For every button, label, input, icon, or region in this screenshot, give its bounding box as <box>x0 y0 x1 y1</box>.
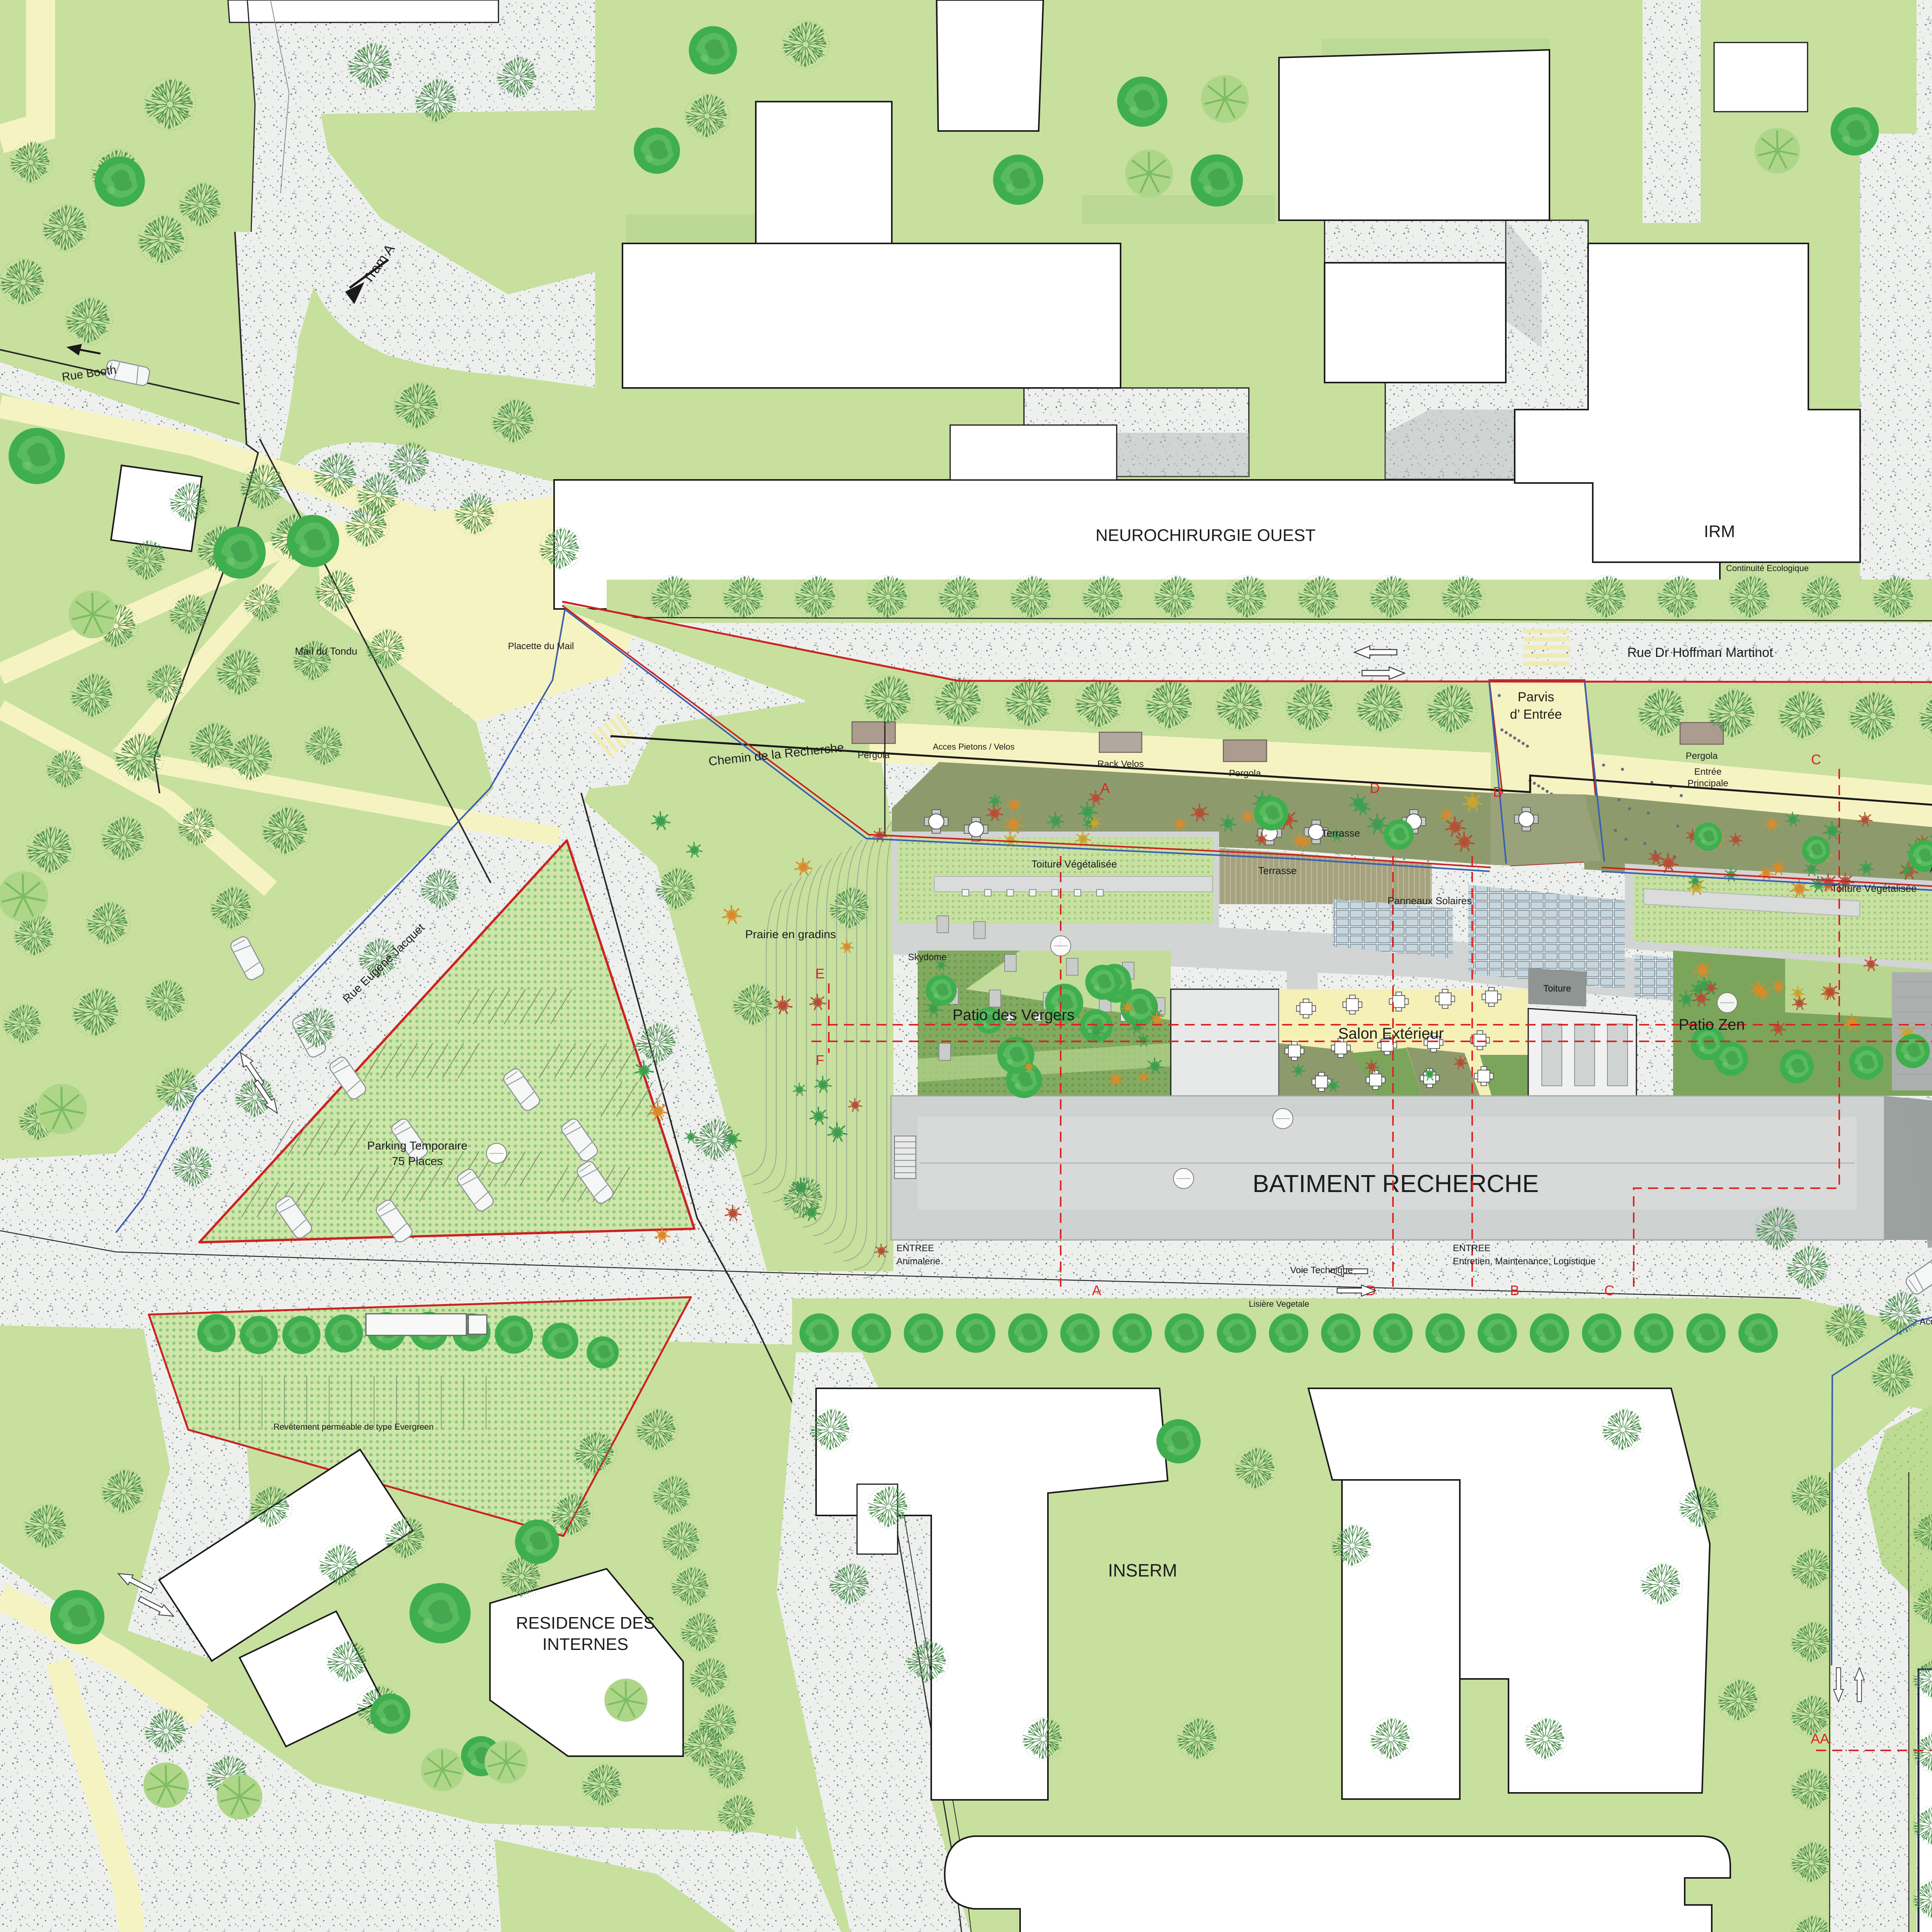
svg-text:IRM: IRM <box>1704 522 1735 541</box>
svg-text:75 Places: 75 Places <box>392 1155 443 1168</box>
svg-text:Terrasse: Terrasse <box>1321 827 1360 839</box>
svg-text:Skydome: Skydome <box>908 952 947 963</box>
svg-text:Patio Zen: Patio Zen <box>1679 1016 1745 1033</box>
svg-text:B: B <box>1510 1282 1519 1298</box>
svg-text:NEUROCHIRURGIE OUEST: NEUROCHIRURGIE OUEST <box>1095 526 1316 545</box>
svg-text:Terrasse: Terrasse <box>1258 865 1297 876</box>
svg-text:Animalerie: Animalerie <box>896 1256 940 1267</box>
svg-text:RESIDENCE DES: RESIDENCE DES <box>516 1614 655 1633</box>
svg-text:Accès Vehicules: Accès Vehicules <box>1920 1316 1932 1327</box>
svg-text:Mail du Tondu: Mail du Tondu <box>295 645 357 657</box>
svg-text:Acces Pietons / Velos: Acces Pietons / Velos <box>1930 865 1932 874</box>
svg-text:Continuité Ecologique: Continuité Ecologique <box>1726 563 1809 573</box>
svg-text:Voie Technique: Voie Technique <box>1290 1265 1353 1276</box>
svg-text:Placette du Mail: Placette du Mail <box>508 641 574 651</box>
svg-text:Salon Extérieur: Salon Extérieur <box>1338 1025 1444 1042</box>
svg-text:Principale: Principale <box>1687 778 1728 789</box>
svg-text:Revêtement perméable de type E: Revêtement perméable de type Evergreen <box>274 1422 434 1432</box>
svg-text:E: E <box>815 966 825 981</box>
svg-text:Entrée: Entrée <box>1694 767 1722 777</box>
svg-text:ENTREE: ENTREE <box>1453 1243 1490 1253</box>
svg-text:F: F <box>816 1052 824 1068</box>
svg-text:C: C <box>1811 752 1821 767</box>
svg-text:Lisière Vegetale: Lisière Vegetale <box>1249 1299 1310 1309</box>
svg-text:Toiture Végétalisée: Toiture Végétalisée <box>1031 858 1117 870</box>
svg-text:D: D <box>1370 780 1380 796</box>
svg-text:ENTREE: ENTREE <box>896 1243 934 1253</box>
svg-text:Acces Pietons / Velos: Acces Pietons / Velos <box>933 742 1015 752</box>
svg-text:Prairie en gradins: Prairie en gradins <box>745 928 836 941</box>
svg-text:C: C <box>1604 1282 1614 1298</box>
svg-text:A: A <box>1100 780 1110 796</box>
svg-text:B: B <box>1493 784 1502 800</box>
svg-text:Toiture Végétalisée: Toiture Végétalisée <box>1831 883 1917 894</box>
svg-text:AA: AA <box>1811 1731 1829 1747</box>
svg-text:Panneaux Solaires: Panneaux Solaires <box>1388 895 1472 906</box>
svg-text:Entretien, Maintenance, Logist: Entretien, Maintenance, Logistique <box>1453 1256 1596 1267</box>
svg-text:d’ Entrée: d’ Entrée <box>1510 707 1562 722</box>
svg-text:Toiture: Toiture <box>1543 983 1571 994</box>
svg-text:INSERM: INSERM <box>1108 1560 1177 1580</box>
svg-text:BATIMENT RECHERCHE: BATIMENT RECHERCHE <box>1253 1170 1539 1197</box>
svg-text:Parking Temporaire: Parking Temporaire <box>367 1139 468 1152</box>
svg-text:Rue Dr Hoffman Martinot: Rue Dr Hoffman Martinot <box>1627 645 1773 660</box>
svg-text:A: A <box>1092 1282 1101 1298</box>
svg-text:INTERNES: INTERNES <box>543 1635 628 1654</box>
svg-text:Parvis: Parvis <box>1518 690 1554 704</box>
svg-text:Patio des Vergers: Patio des Vergers <box>952 1007 1075 1024</box>
svg-text:Pergola: Pergola <box>1686 751 1718 761</box>
